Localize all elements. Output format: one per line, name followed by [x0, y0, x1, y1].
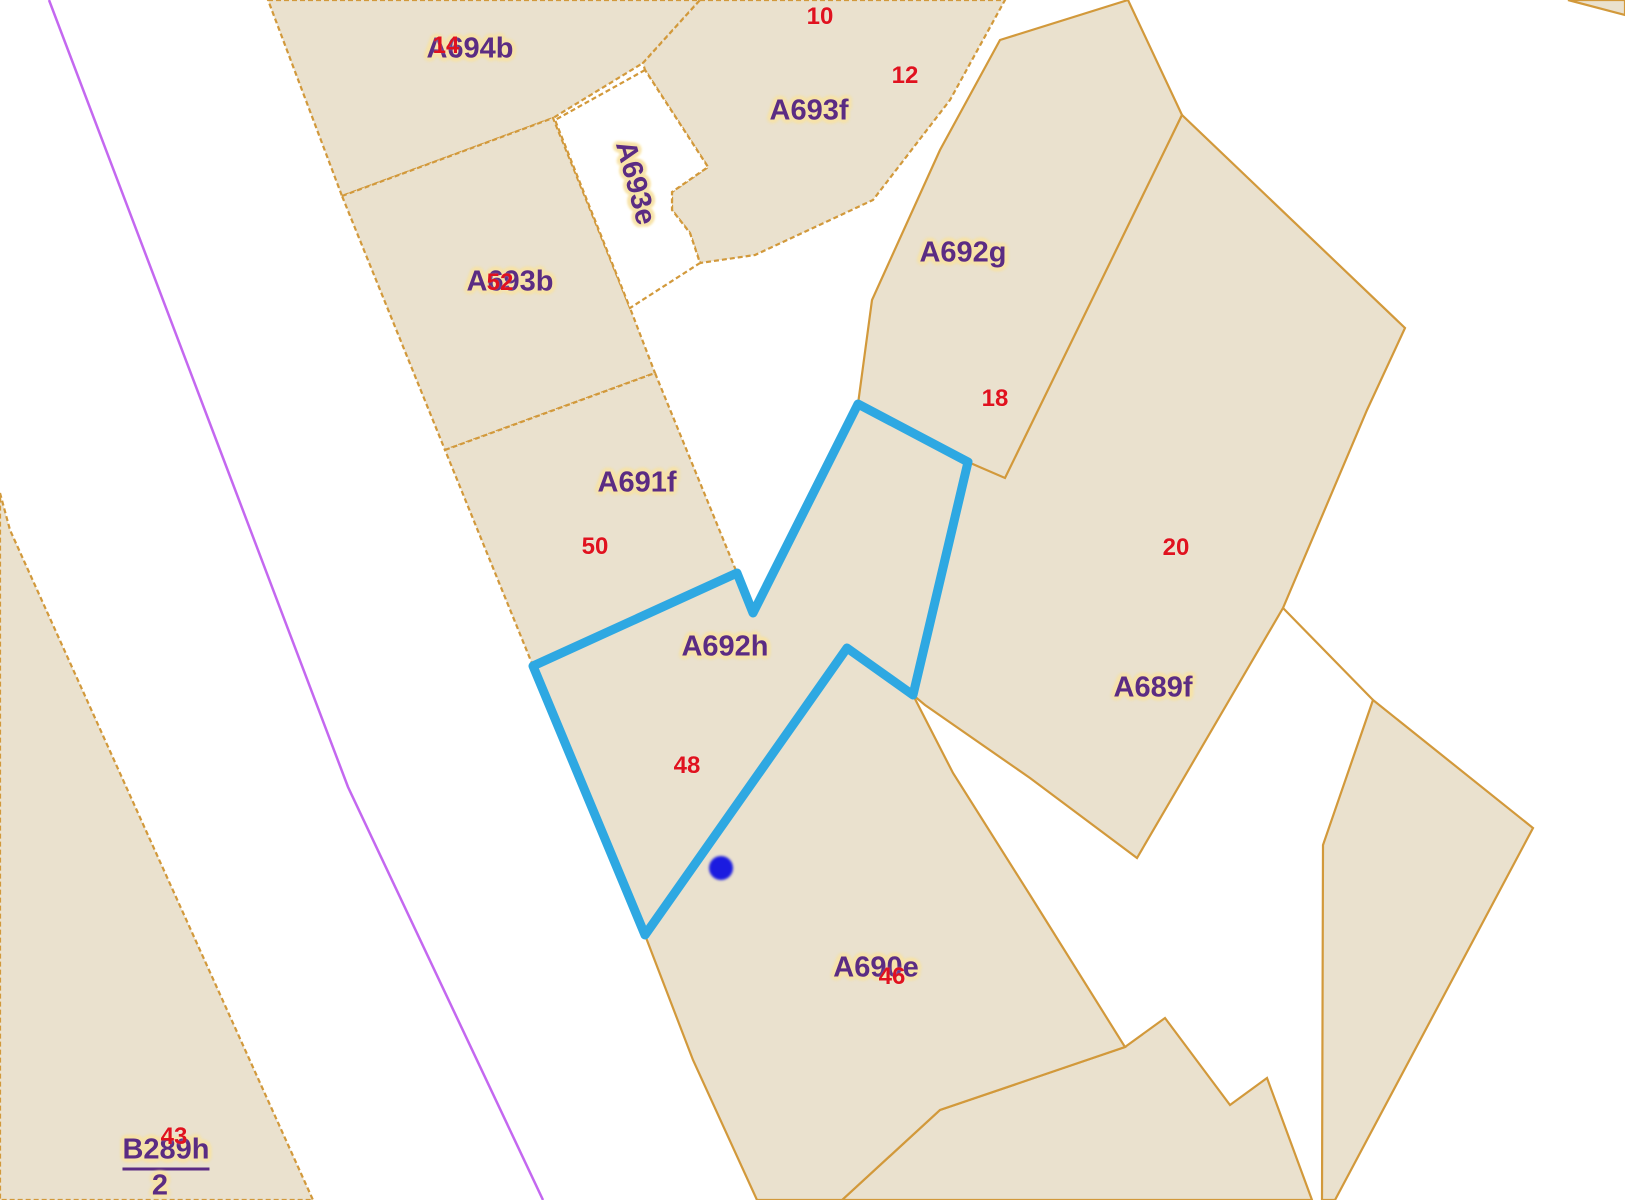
parcel-parcel-bottom-right[interactable]	[1322, 700, 1533, 1200]
parcel-parcel-top-right-sliver[interactable]	[1568, 0, 1625, 15]
parcel-B289h[interactable]	[0, 493, 313, 1200]
map-canvas	[0, 0, 1625, 1200]
location-marker	[709, 856, 733, 880]
orange-connector-line	[1283, 608, 1373, 700]
cadastral-map-viewport: A694bA693fA693eA692gA693bA691fA692hA689f…	[0, 0, 1625, 1200]
